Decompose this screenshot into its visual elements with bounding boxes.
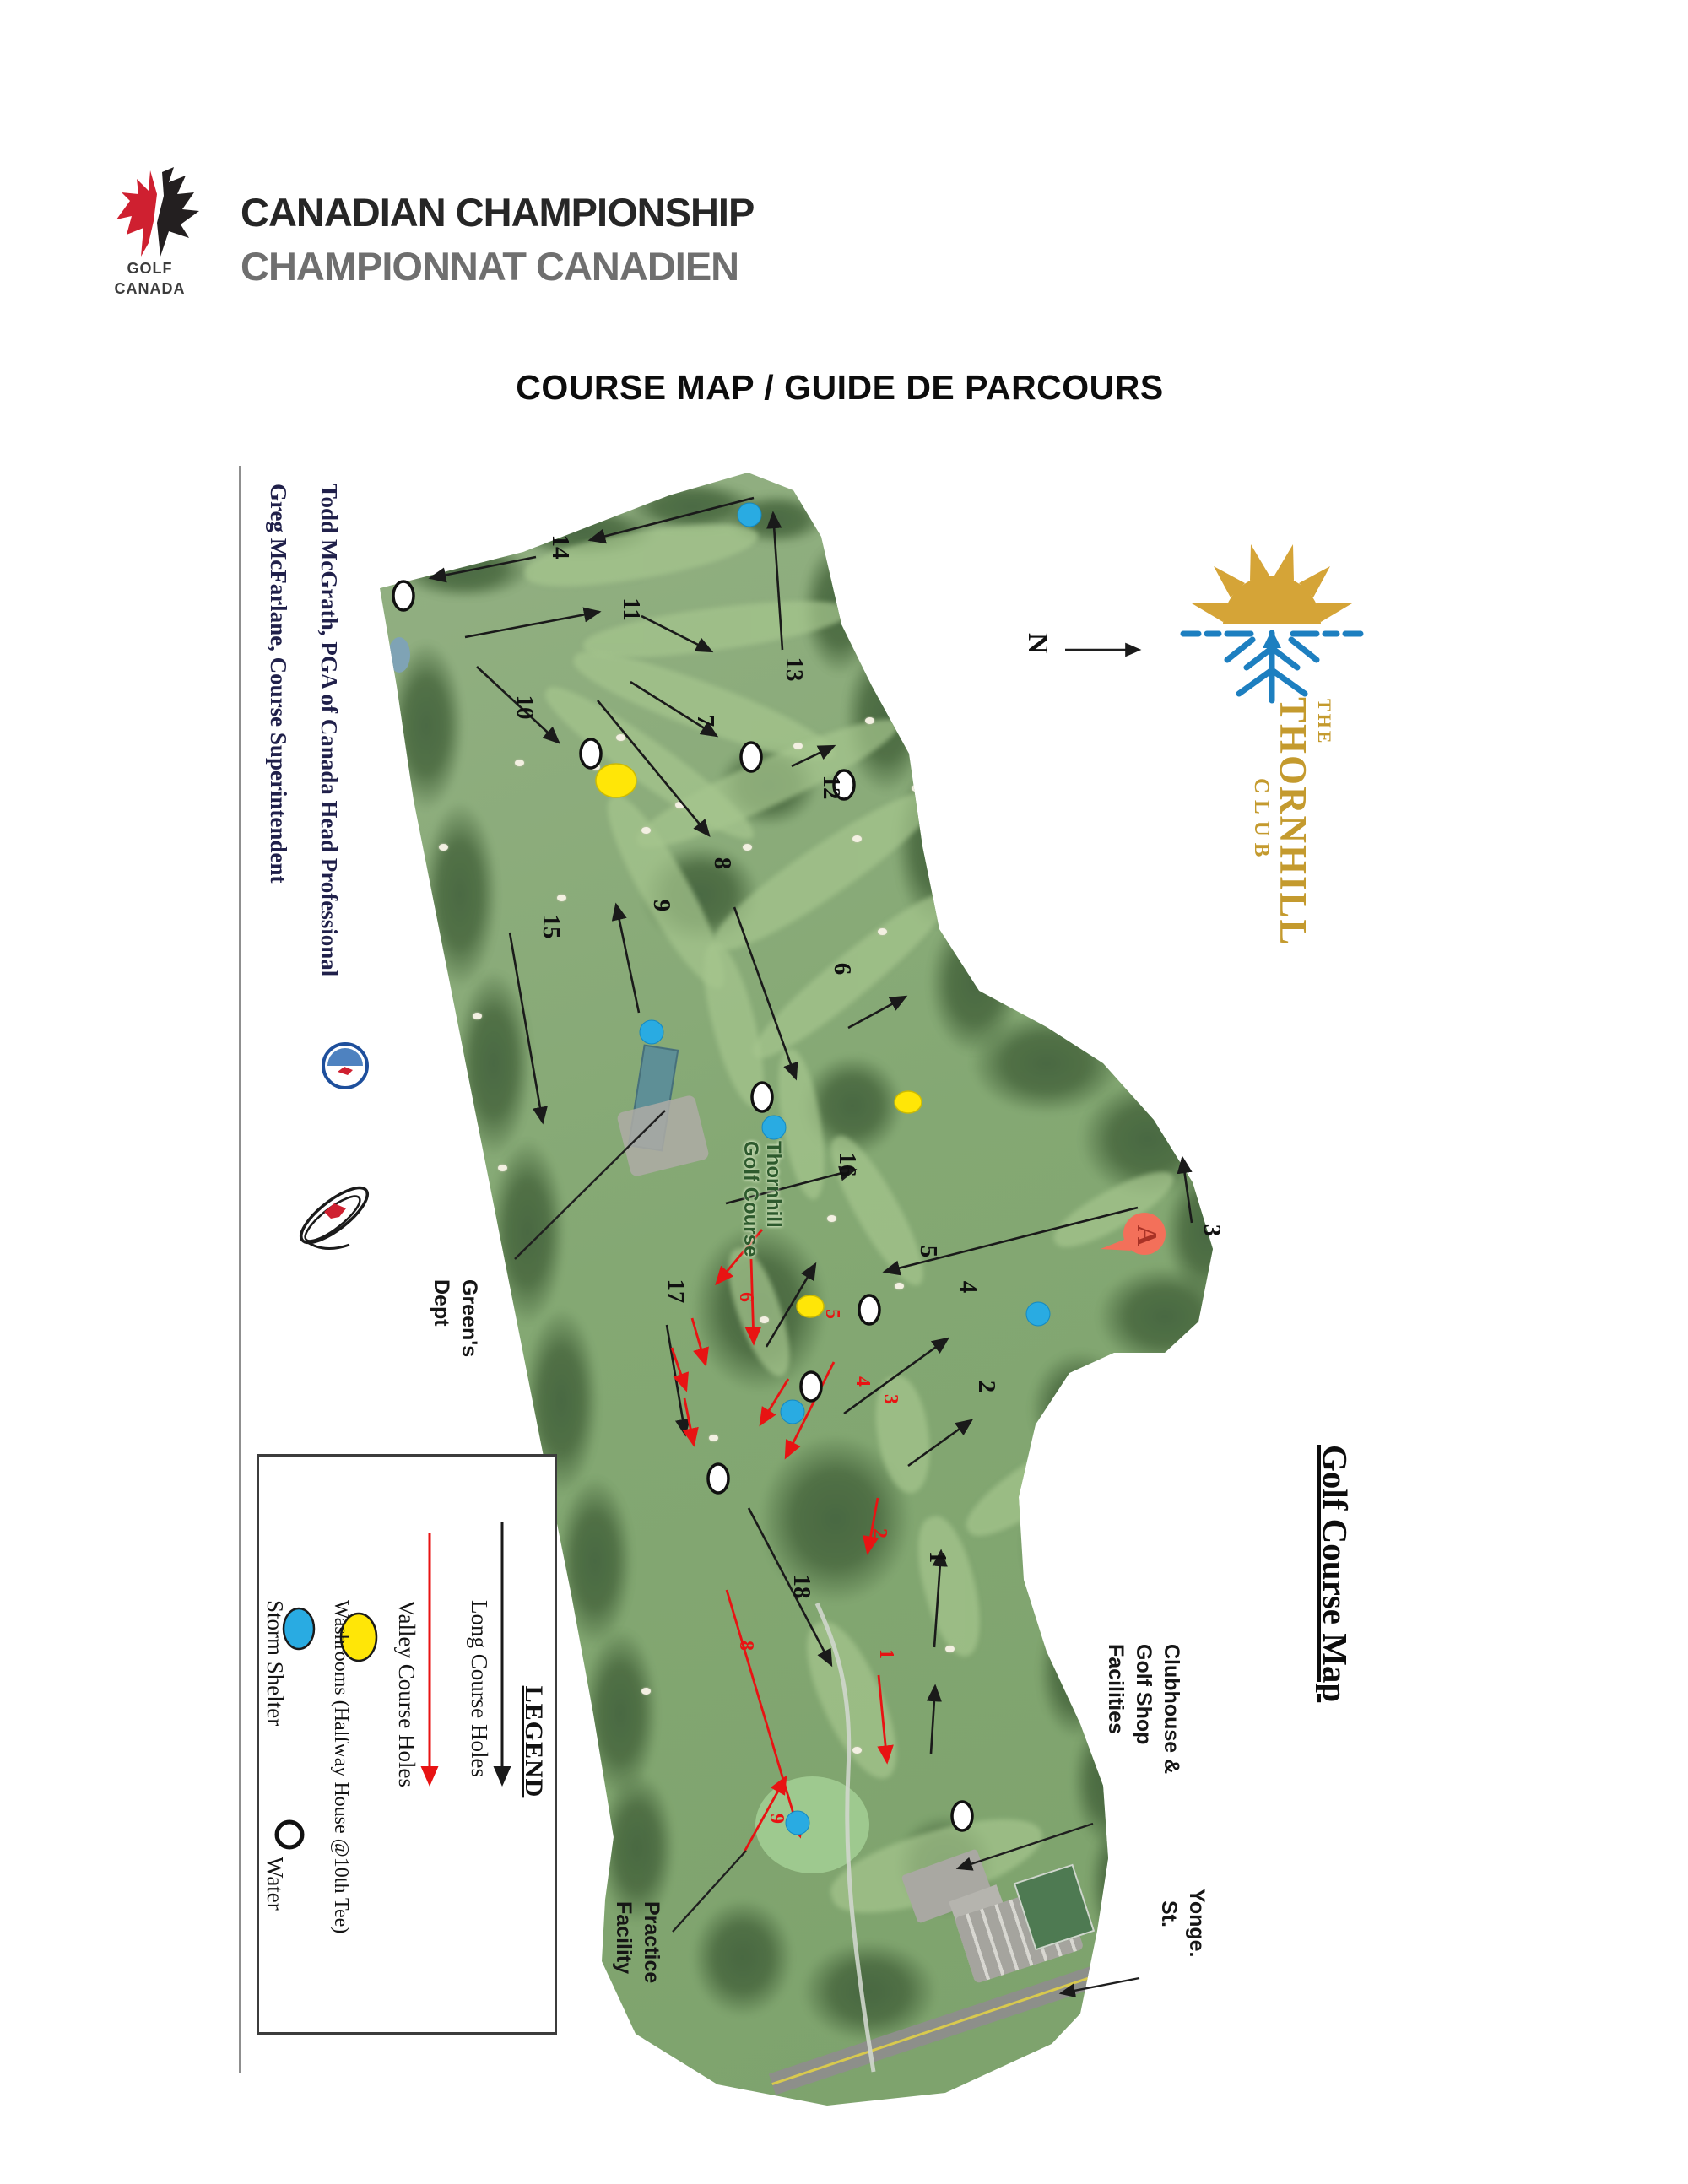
legend-item-valley: Valley Course Holes — [393, 1600, 419, 1787]
long-hole-arrow — [590, 498, 754, 540]
legend: LEGEND Long Course Holes Valley Course H… — [257, 1454, 557, 2035]
storm-shelter-marker — [1026, 1302, 1050, 1326]
long-hole-arrow — [630, 682, 717, 736]
clubhouse-line1: Clubhouse & — [1157, 1644, 1185, 1774]
clubhouse-line2: Golf Shop — [1129, 1644, 1157, 1774]
clubhouse-line3: Facilities — [1101, 1644, 1129, 1774]
hole-number-long: 11 — [618, 597, 645, 620]
watermark-line1: Thornhill — [762, 1141, 785, 1257]
hole-number-long: 16 — [834, 1153, 861, 1177]
hole-number-valley: 8 — [735, 1641, 757, 1651]
long-hole-arrow — [465, 612, 599, 637]
legend-item-storm: Storm Shelter — [262, 1600, 288, 1726]
washroom-marker — [797, 1295, 824, 1317]
storm-shelter-marker — [786, 1811, 809, 1835]
water-marker — [581, 739, 601, 768]
greens-dept-label: Green's Dept — [427, 1279, 483, 1357]
greens-dept-line2: Dept — [427, 1279, 455, 1357]
clubhouse-label: Clubhouse & Golf Shop Facilities — [1101, 1644, 1185, 1774]
valley-hole-arrow — [879, 1675, 887, 1762]
greens-dept-line1: Green's — [455, 1279, 483, 1357]
hole-number-long: 15 — [538, 915, 565, 939]
pointer-line — [1061, 1978, 1139, 1993]
hole-number-long: 17 — [663, 1279, 690, 1304]
long-hole-arrow — [934, 1551, 941, 1647]
long-hole-arrow — [734, 907, 796, 1078]
hole-number-long: 1 — [924, 1551, 951, 1564]
hole-number-long: 6 — [829, 963, 856, 976]
pointer-line — [515, 1111, 665, 1259]
hole-number-long: 13 — [781, 657, 808, 682]
course-watermark: Thornhill Golf Course — [739, 1141, 785, 1257]
legend-storm-shelter-icon — [284, 1608, 314, 1649]
long-hole-arrow — [773, 513, 782, 650]
water-marker — [801, 1372, 821, 1401]
valley-hole-arrow — [692, 1318, 706, 1365]
valley-hole-arrow — [868, 1498, 878, 1553]
hole-number-long: 18 — [788, 1575, 815, 1599]
water-marker — [952, 1802, 972, 1830]
hole-number-long: 2 — [973, 1381, 1000, 1393]
practice-line2: Facility — [609, 1901, 637, 1983]
legend-water-icon — [277, 1822, 302, 1847]
map-overlay: A 14111371210891561617543211865432189 — [0, 0, 1688, 2184]
hole-number-valley: 3 — [879, 1394, 901, 1404]
hole-number-long: 5 — [915, 1246, 942, 1258]
long-hole-arrow — [792, 746, 834, 766]
long-hole-arrow — [1182, 1158, 1192, 1223]
legend-item-long: Long Course Holes — [466, 1600, 492, 1777]
washroom-marker — [596, 764, 636, 797]
water-marker — [741, 743, 761, 771]
hole-number-valley: 4 — [852, 1376, 874, 1387]
hole-number-valley: 1 — [875, 1649, 897, 1659]
valley-hole-arrow — [684, 1398, 694, 1445]
hole-number-valley: 5 — [821, 1309, 843, 1319]
cart-path — [817, 1603, 874, 2072]
washroom-marker — [895, 1091, 922, 1113]
hole-number-valley: 9 — [766, 1814, 787, 1824]
storm-shelter-marker — [640, 1020, 663, 1044]
long-hole-arrow — [616, 905, 639, 1013]
water-marker — [393, 581, 414, 610]
hole-number-long: 7 — [692, 715, 719, 727]
practice-line1: Practice — [637, 1901, 665, 1983]
yonge-line2: St. — [1155, 1900, 1182, 1957]
legend-item-water: Water — [262, 1857, 288, 1911]
storm-shelter-marker — [738, 503, 761, 527]
long-hole-arrow — [510, 933, 543, 1122]
hole-number-valley: 6 — [735, 1292, 757, 1302]
long-hole-arrow — [885, 1208, 1138, 1272]
hole-number-long: 14 — [547, 535, 574, 560]
long-hole-arrow — [430, 557, 536, 578]
storm-shelter-marker — [762, 1116, 786, 1139]
hole-number-valley: 2 — [868, 1528, 890, 1538]
hole-number-long: 12 — [818, 776, 845, 800]
pointer-line — [958, 1824, 1093, 1868]
yonge-street-label: Yonge. St. — [1155, 1889, 1210, 1957]
hole-number-long: 9 — [648, 900, 675, 912]
long-hole-arrow — [848, 997, 906, 1028]
flag-letter: A — [1131, 1225, 1162, 1246]
hole-number-long: 4 — [955, 1281, 982, 1294]
pointer-line — [673, 1851, 746, 1932]
long-hole-arrow — [908, 1420, 971, 1466]
hole-number-long: 8 — [709, 857, 736, 870]
valley-hole-arrow — [727, 1590, 800, 1836]
watermark-line2: Golf Course — [739, 1141, 762, 1257]
legend-item-washrooms: Washrooms (Halfway House @10th Tee) — [329, 1600, 352, 1933]
water-marker — [752, 1083, 772, 1111]
long-hole-arrow — [931, 1686, 935, 1754]
storm-shelter-marker — [781, 1400, 804, 1424]
practice-facility-label: Practice Facility — [609, 1901, 665, 1983]
long-hole-arrow — [641, 616, 711, 651]
water-marker — [708, 1464, 728, 1493]
water-marker — [859, 1295, 879, 1324]
yonge-line1: Yonge. — [1182, 1889, 1210, 1957]
hole-number-long: 3 — [1198, 1224, 1225, 1237]
location-flag-a: A — [1101, 1213, 1166, 1255]
hole-number-long: 10 — [511, 695, 538, 720]
